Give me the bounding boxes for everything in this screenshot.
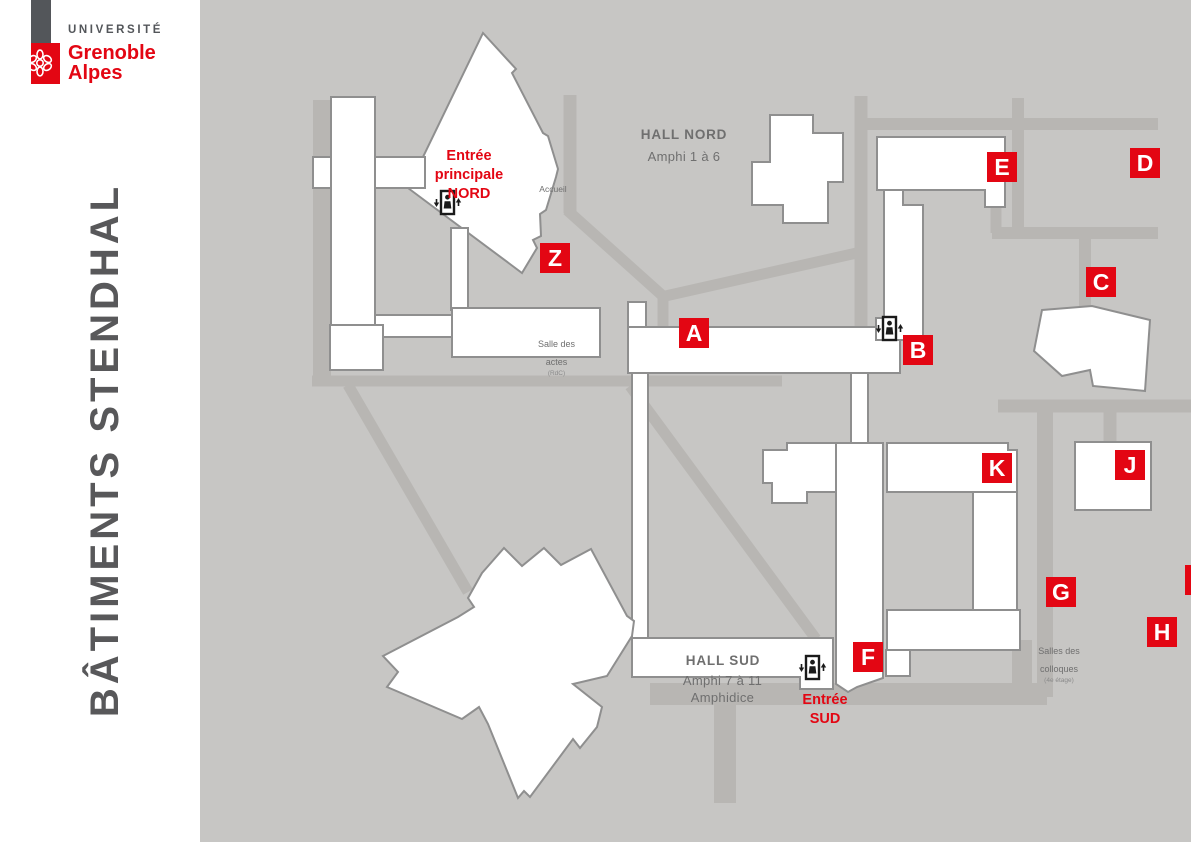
logo-dark-bar: [31, 0, 51, 43]
badge-building-d: D: [1130, 148, 1160, 178]
left-panel: UNIVERSITÉ Grenoble Alpes BÂTIMENTS STEN…: [0, 0, 200, 842]
badge-building-j: J: [1115, 450, 1145, 480]
campus-map-page: { "brand": { "line1": "UNIVERSITÉ", "lin…: [0, 0, 1191, 842]
building-h: [887, 610, 1020, 650]
badge-building-h: H: [1147, 617, 1177, 647]
salle-des-actes-name: Salle des actes: [538, 339, 575, 367]
building-b: [628, 327, 900, 373]
badge-building-c: C: [1086, 267, 1116, 297]
building-z-entrance: [313, 157, 331, 188]
corridor-b-f: [632, 373, 648, 640]
building-hall-sud: [383, 548, 634, 798]
entrance-nord-label: Entrée principale NORD: [417, 147, 521, 204]
badge-building-a: A: [679, 318, 709, 348]
path-diagonal-b: [567, 210, 664, 297]
hall-sud-subtitle: Amphi 7 à 11 Amphidice: [655, 673, 790, 707]
badge-building-z: Z: [540, 243, 570, 273]
badge-building-f: F: [853, 642, 883, 672]
hall-sud-title: HALL SUD: [658, 653, 788, 668]
salles-des-colloques-label: Salles des colloques (4e étage): [1034, 641, 1084, 684]
building-i: [973, 492, 1017, 610]
uga-flower-icon: [31, 43, 60, 84]
building-salle-des-actes: [330, 325, 383, 370]
hall-nord-subtitle: Amphi 1 à 6: [620, 149, 748, 166]
badge-building-g: G: [1046, 577, 1076, 607]
path-diagonal-c: [661, 252, 861, 297]
path-diagonal-hallsud: [348, 385, 468, 592]
corridor-b-g: [851, 373, 868, 445]
building-k: [763, 443, 838, 503]
page-title: BÂTIMENTS STENDHAL: [76, 150, 134, 750]
accueil-label: Accueil: [532, 184, 574, 195]
salles-des-colloques-name: Salles des colloques: [1038, 646, 1080, 674]
corridor-hallnord-a: [451, 228, 468, 310]
building-h-stub: [886, 650, 910, 676]
badge-building-i: I: [1185, 565, 1191, 595]
badge-building-k: K: [982, 453, 1012, 483]
salles-des-colloques-floor: (4e étage): [1034, 677, 1084, 684]
hall-nord-title: HALL NORD: [620, 127, 748, 142]
brand-alpes: Alpes: [68, 62, 122, 85]
building-e: [752, 115, 843, 223]
brand-universite: UNIVERSITÉ: [68, 24, 163, 36]
entrance-sud-label: Entrée SUD: [783, 691, 867, 729]
path-diagonal-f: [630, 386, 816, 639]
salle-des-actes-floor: (RdC): [530, 370, 583, 377]
uga-logo: [31, 43, 60, 84]
building-p: [1034, 306, 1150, 391]
corridor-z-a: [375, 315, 452, 337]
salle-des-actes-label: Salle des actes (RdC): [530, 334, 583, 377]
badge-building-e: E: [987, 152, 1017, 182]
badge-building-b: B: [903, 335, 933, 365]
